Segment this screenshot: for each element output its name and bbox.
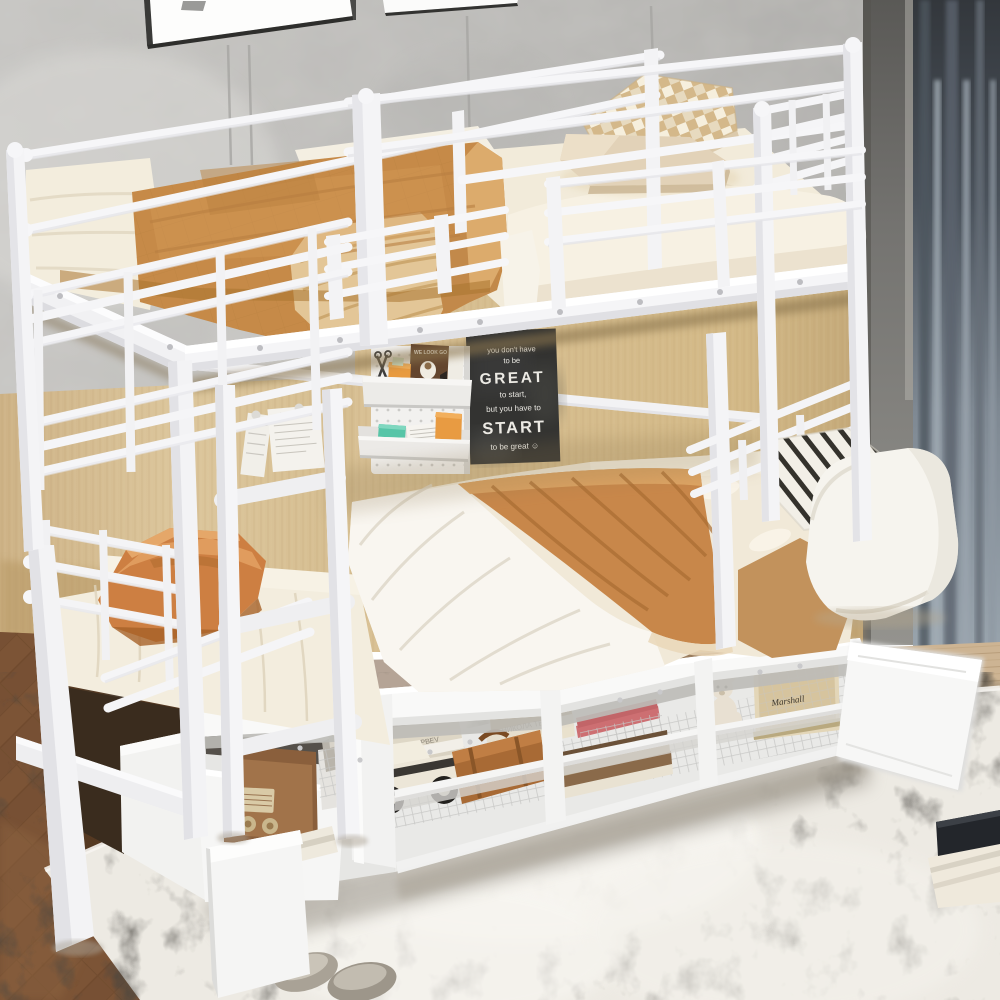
svg-text:GREAT: GREAT [479, 369, 545, 388]
svg-text:to be: to be [503, 356, 520, 366]
svg-text:but you have to: but you have to [486, 403, 542, 414]
svg-text:to start,: to start, [499, 390, 526, 400]
svg-text:START: START [482, 418, 546, 438]
